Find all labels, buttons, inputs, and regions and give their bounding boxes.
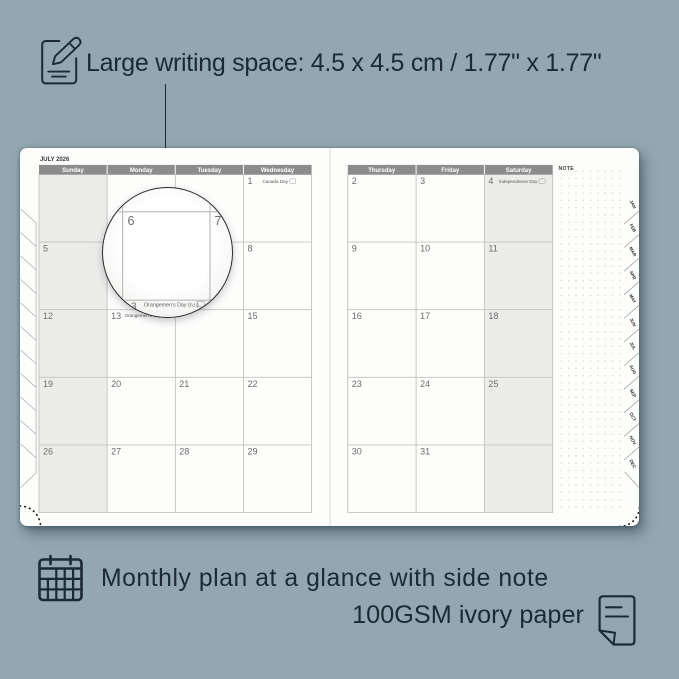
svg-text:NOV: NOV <box>628 434 637 445</box>
svg-text:15: 15 <box>247 311 257 321</box>
svg-text:Wednesday: Wednesday <box>261 167 295 173</box>
svg-text:10: 10 <box>420 243 430 253</box>
svg-text:26: 26 <box>43 446 53 456</box>
svg-text:7: 7 <box>215 214 222 228</box>
svg-text:MAY: MAY <box>628 293 637 304</box>
svg-text:21: 21 <box>179 378 189 388</box>
svg-text:4: 4 <box>488 176 493 186</box>
svg-text:28: 28 <box>179 446 189 456</box>
svg-text:Orangemen's Day (n.i.): Orangemen's Day (n.i.) <box>144 303 199 309</box>
svg-text:3: 3 <box>131 302 137 313</box>
svg-text:Thursday: Thursday <box>368 167 396 173</box>
svg-text:25: 25 <box>488 378 498 388</box>
svg-text:18: 18 <box>488 311 498 321</box>
svg-text:NOTE: NOTE <box>559 166 575 172</box>
svg-text:9: 9 <box>352 243 357 253</box>
svg-text:FEB: FEB <box>629 222 638 232</box>
svg-text:AUG: AUG <box>628 364 637 375</box>
svg-text:16: 16 <box>352 311 362 321</box>
svg-text:JULY 2026: JULY 2026 <box>40 156 70 162</box>
svg-text:Tuesday: Tuesday <box>197 167 222 173</box>
svg-text:2: 2 <box>352 176 357 186</box>
svg-text:27: 27 <box>111 446 121 456</box>
svg-text:19: 19 <box>43 378 53 388</box>
svg-text:JUN: JUN <box>629 317 638 327</box>
svg-text:3: 3 <box>420 176 425 186</box>
svg-text:Canada Day: Canada Day <box>262 178 288 183</box>
svg-text:23: 23 <box>352 378 362 388</box>
svg-text:MAR: MAR <box>628 245 637 257</box>
svg-text:17: 17 <box>420 311 430 321</box>
svg-text:APR: APR <box>628 269 637 280</box>
svg-text:Sunday: Sunday <box>62 167 84 173</box>
svg-text:SEP: SEP <box>629 388 638 398</box>
svg-text:JAN: JAN <box>629 199 638 209</box>
svg-text:Saturday: Saturday <box>506 167 532 173</box>
svg-text:6: 6 <box>128 214 135 228</box>
svg-text:20: 20 <box>111 378 121 388</box>
svg-text:1: 1 <box>247 176 252 186</box>
svg-text:22: 22 <box>247 378 257 388</box>
svg-text:OCT: OCT <box>628 411 637 422</box>
svg-text:8: 8 <box>247 243 252 253</box>
svg-text:29: 29 <box>247 446 257 456</box>
svg-text:24: 24 <box>420 378 430 388</box>
svg-text:Independence Day: Independence Day <box>499 178 538 183</box>
svg-text:31: 31 <box>420 446 430 456</box>
svg-text:12: 12 <box>43 311 53 321</box>
svg-text:11: 11 <box>488 243 497 253</box>
svg-text:Friday: Friday <box>441 167 460 173</box>
svg-text:JUL: JUL <box>629 341 637 351</box>
svg-text:5: 5 <box>43 243 48 253</box>
svg-text:Monday: Monday <box>130 167 153 173</box>
svg-text:DEC: DEC <box>628 458 637 469</box>
svg-text:30: 30 <box>352 446 362 456</box>
